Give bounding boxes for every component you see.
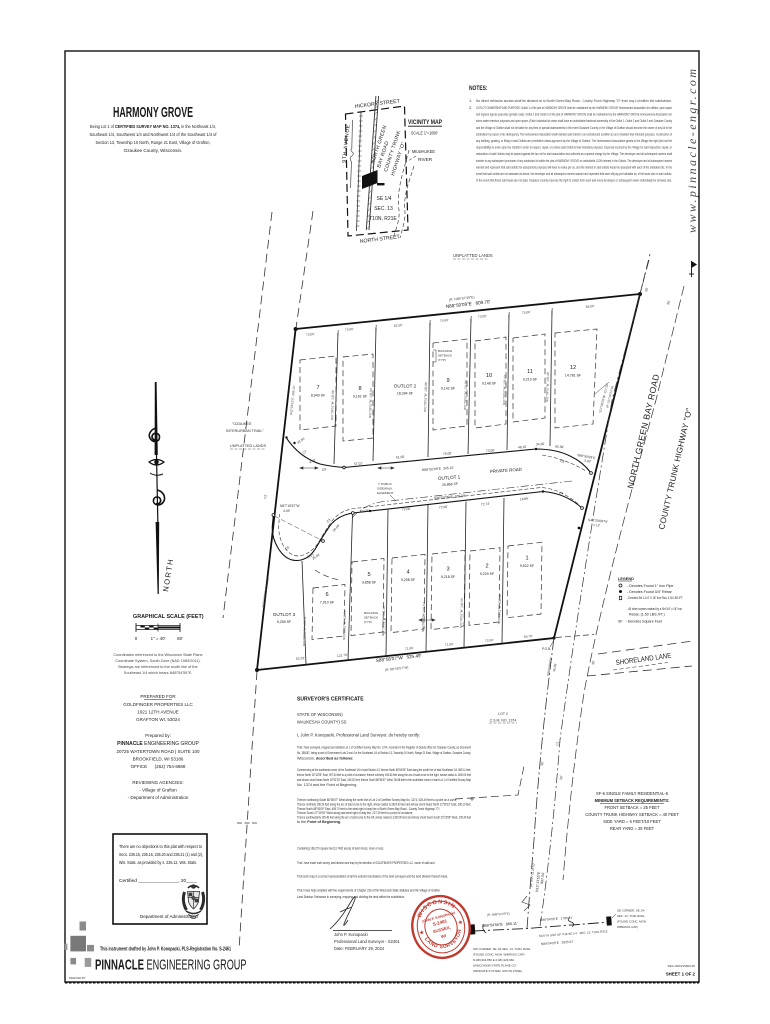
- svg-text:30': 30': [559, 775, 564, 780]
- svg-text:- Village of Grafton: - Village of Grafton: [139, 788, 177, 793]
- svg-text:MINIMUM SETBACK REQUIREMENTS:: MINIMUM SETBACK REQUIREMENTS:: [595, 798, 670, 803]
- svg-text:EASEMENT: EASEMENT: [377, 491, 394, 495]
- svg-text:85.39': 85.39': [555, 445, 565, 450]
- svg-text:9: 9: [446, 378, 449, 384]
- svg-text:STATE OF WISCONSIN): STATE OF WISCONSIN): [297, 712, 343, 717]
- svg-text:and whose chord bears North 19: and whose chord bears North 19°52'25" Ea…: [297, 778, 471, 782]
- svg-text:"OZAUKEE: "OZAUKEE: [232, 422, 252, 426]
- svg-text:C2: C2: [263, 494, 268, 499]
- svg-text:PREPARED FOR: PREPARED FOR: [140, 694, 176, 699]
- svg-text:RIVER: RIVER: [418, 157, 433, 162]
- svg-text:Wis. Stats. as provided by s.: Wis. Stats. as provided by s. 236.12, Wi…: [119, 860, 197, 866]
- svg-text:UNPLATTED LANDS: UNPLATTED LANDS: [230, 444, 266, 448]
- svg-text:warrant and represent that sai: warrant and represent that said outlots …: [476, 164, 672, 169]
- svg-text:OUTLOT OWNERSHIP AND PURPOSE:: OUTLOT OWNERSHIP AND PURPOSE: Outlot 1 o…: [476, 105, 672, 110]
- svg-text:ENGINEERING GROUP: ENGINEERING GROUP: [147, 958, 247, 974]
- svg-text:7,910 SF: 7,910 SF: [320, 601, 334, 605]
- svg-text:72.00': 72.00': [402, 507, 412, 512]
- svg-text:SHEET 1 OF 2: SHEET 1 OF 2: [666, 972, 696, 977]
- svg-text:(WISCONSIN STATE PLANE CO-: (WISCONSIN STATE PLANE CO-: [473, 964, 517, 968]
- svg-text:- Denotes Set 1-1/4" X 18" Ir: - Denotes Set 1-1/4" X 18" Iron Rod, 4.3…: [627, 596, 683, 600]
- svg-text:This instrument drafted by Joh: This instrument drafted by John P. Konop…: [100, 947, 231, 953]
- svg-text:PINNACLE: PINNACLE: [95, 958, 144, 974]
- svg-text:- Denotes Found 3/4" Rebar: - Denotes Found 3/4" Rebar: [627, 590, 673, 594]
- svg-text:Commencing at the southwest co: Commencing at the southwest corner of th…: [297, 768, 471, 772]
- svg-text:12: 12: [570, 365, 576, 371]
- svg-text:80': 80': [177, 636, 183, 641]
- svg-text:9,218 SF: 9,218 SF: [441, 575, 455, 579]
- svg-text:subdivision by reason of tax d: subdivision by reason of tax delinquency…: [476, 131, 673, 136]
- svg-text:1" = 40': 1" = 40': [151, 636, 166, 641]
- svg-text:2: 2: [485, 564, 488, 570]
- svg-text:72.73': 72.73': [481, 502, 491, 507]
- svg-text:That I have surveyed, mapped a: That I have surveyed, mapped and divided…: [297, 746, 471, 750]
- svg-text:4.49': 4.49': [283, 509, 290, 513]
- svg-text:BROOKFIELD, WI 53186: BROOKFIELD, WI 53186: [133, 757, 184, 762]
- svg-text:Professional Land Surveyor - S: Professional Land Surveyor - S2461: [334, 939, 400, 944]
- svg-text:2.: 2.: [469, 105, 472, 110]
- svg-text:9,161 SF: 9,161 SF: [353, 395, 367, 399]
- svg-text:(TYP): (TYP): [364, 620, 372, 624]
- svg-text:Ozaukee County, Wisconsin.: Ozaukee County, Wisconsin.: [124, 148, 183, 153]
- svg-text:8,940 SF: 8,940 SF: [311, 394, 325, 398]
- svg-text:75.00': 75.00': [443, 451, 453, 456]
- svg-text:SEC. 13: SEC. 13: [374, 206, 393, 212]
- svg-text:30': 30': [540, 761, 545, 766]
- svg-text:GRAPHICAL SCALE (FEET): GRAPHICAL SCALE (FEET): [133, 614, 204, 620]
- svg-text:SIDE YARD = 6 FEET/10 FEET: SIDE YARD = 6 FEET/10 FEET: [603, 819, 661, 824]
- svg-text:NOTES:: NOTES:: [469, 85, 488, 92]
- svg-text:Thence South 27°39'03" West al: Thence South 27°39'03" West along said w…: [297, 811, 413, 815]
- svg-text:10: 10: [486, 373, 492, 379]
- svg-text:No direct vehicular access sha: No direct vehicular access shall be allo…: [476, 98, 672, 103]
- svg-text:OUTLOT 3: OUTLOT 3: [273, 612, 296, 617]
- svg-text:P.O.B.: P.O.B.: [542, 647, 551, 651]
- svg-text:5: 5: [367, 572, 370, 578]
- svg-text:REAR YARD = 25 FEET: REAR YARD = 25 FEET: [610, 826, 655, 831]
- svg-text:No. 356267, being a part of Go: No. 356267, being a part of Government L…: [297, 751, 471, 755]
- svg-text:- Department of Administration: - Department of Administration: [128, 795, 189, 800]
- svg-text:SW CORNER, SE 1/4 SEC. 13, T10: SW CORNER, SE 1/4 SEC. 13, T10N, R21E: [473, 947, 530, 951]
- svg-text:Wisconsin, described as follow: Wisconsin, described as follows:: [297, 757, 353, 761]
- svg-text:Southeast 1/4 which bears N88°: Southeast 1/4 which bears N88°54'55"E.: [124, 671, 192, 675]
- svg-text:any building, grading, or fill: any building, grading, or filling in sai…: [476, 138, 672, 143]
- svg-text:C8: C8: [560, 459, 565, 464]
- svg-text:14,781 SF: 14,781 SF: [565, 374, 581, 378]
- svg-text:Coordinates referenced to the: Coordinates referenced to the Wisconsin …: [113, 653, 202, 657]
- svg-text:Land Division Ordinance in su: Land Division Ordinance in surveying, ma…: [297, 895, 405, 899]
- svg-text:PEG-0064/15003.00: PEG-0064/15003.00: [668, 964, 696, 968]
- svg-text:N87°18'57"W: N87°18'57"W: [280, 504, 301, 508]
- svg-text:Containing 168,270 square feet: Containing 168,270 square feet (3.7482 a…: [297, 847, 384, 851]
- svg-text:73.00': 73.00': [486, 448, 496, 453]
- svg-text:SE 1/4: SE 1/4: [376, 196, 391, 202]
- svg-text:(FOUND CONC. MON. W/BRASS CAP): (FOUND CONC. MON. W/BRASS CAP): [473, 953, 525, 957]
- svg-text:WAUKESHA COUNTY) SS: WAUKESHA COUNTY) SS: [297, 720, 347, 725]
- svg-text:storm water retention purposes: storm water retention purposes and open …: [476, 118, 672, 123]
- svg-text:5,259 SF: 5,259 SF: [277, 620, 291, 624]
- svg-text:Coordinate System, South Zone: Coordinate System, South Zone (NAD 1983/…: [115, 659, 200, 663]
- svg-text:SETBACK: SETBACK: [438, 354, 452, 358]
- svg-text:Rebar, (1.50 LBS./FT.): Rebar, (1.50 LBS./FT.): [629, 613, 665, 617]
- svg-text:C4: C4: [559, 491, 564, 496]
- svg-text:SF-6 SINGLE FAMILY RESIDENTIAL: SF-6 SINGLE FAMILY RESIDENTIAL-6: [596, 791, 669, 796]
- svg-text:6: 6: [325, 592, 328, 598]
- svg-text:SEC. 13, T10N R21E: SEC. 13, T10N R21E: [617, 914, 644, 918]
- svg-text:1.12': 1.12': [593, 523, 601, 528]
- svg-text:PINNACLE ENGINEERING GROUP: PINNACLE ENGINEERING GROUP: [117, 741, 199, 747]
- svg-text:SCALE 1"=1000': SCALE 1"=1000': [411, 131, 438, 136]
- svg-text:HARMONY GROVE: HARMONY GROVE: [113, 104, 193, 121]
- svg-text:and ingress-egress purposes (p: and ingress-egress purposes (private roa…: [476, 112, 672, 117]
- svg-text:OFFICE (262) 754-8888: OFFICE (262) 754-8888: [131, 764, 186, 769]
- svg-text:Being Lot 1 of CERTIFIED SURVE: Being Lot 1 of CERTIFIED SURVEY MAP NO. …: [90, 124, 216, 129]
- svg-text:Prepared by:: Prepared by:: [145, 733, 171, 738]
- svg-text:Secs. 236.15, 236.16, 236.20 a: Secs. 236.15, 236.16, 236.20 and 236.21 …: [119, 852, 203, 858]
- svg-text:N:480,964.850 E:2,481,926.960: N:480,964.850 E:2,481,926.960: [473, 958, 514, 962]
- svg-text:DRAFTED BY: DRAFTED BY: [69, 976, 86, 980]
- svg-text:I, John P. Konopacki, Professi: I, John P. Konopacki, Professional Land …: [297, 733, 420, 738]
- svg-text:Bearings are referenced to the: Bearings are referenced to the south lin…: [118, 665, 197, 669]
- svg-text:Thence southwesterly 105.48 fe: Thence southwesterly 105.48 feet along t…: [297, 816, 471, 820]
- svg-text:That I have fully complied wit: That I have fully complied with the requ…: [297, 889, 440, 893]
- svg-text:Section 13, Township 10 North,: Section 13, Township 10 North, Range 21 …: [96, 140, 211, 145]
- svg-text:That I have made such survey,: That I have made such survey, land divis…: [297, 861, 435, 865]
- svg-text:9,220 SF: 9,220 SF: [480, 572, 494, 576]
- svg-text:SF - Denotes Square Feet: SF - Denotes Square Feet: [618, 620, 662, 624]
- svg-text:72.00': 72.00': [439, 505, 449, 510]
- svg-text:BUILDING: BUILDING: [438, 349, 453, 353]
- svg-text:3: 3: [446, 567, 449, 573]
- svg-text:GRAFTON WI, 53024: GRAFTON WI, 53024: [136, 717, 180, 722]
- svg-text:REVIEWING AGENCIES:: REVIEWING AGENCIES:: [132, 780, 183, 785]
- svg-text:(TYP): (TYP): [438, 358, 446, 362]
- svg-text:MILWAUKEE: MILWAUKEE: [412, 149, 435, 154]
- svg-text:W/BRASS CAP): W/BRASS CAP): [617, 925, 638, 929]
- svg-text:Thence continuing South 88°58': Thence continuing South 88°58'07" West a…: [297, 798, 457, 802]
- svg-text:Certified _______________, 20_: Certified _______________, 20____: [119, 878, 197, 884]
- svg-text:T10N, R21E: T10N, R21E: [369, 216, 397, 222]
- svg-text:1: 1: [525, 556, 528, 562]
- svg-text:No. 1374 and the Point of Begi: No. 1374 and the Point of Beginning.: [297, 783, 357, 787]
- svg-text:John P. Konopacki: John P. Konopacki: [334, 932, 368, 937]
- svg-text:Date: FEBRUARY 29, 2024: Date: FEBRUARY 29, 2024: [334, 946, 385, 951]
- svg-text:LEGEND: LEGEND: [618, 577, 634, 581]
- svg-text:That such map is a correct rep: That such map is a correct representatio…: [297, 875, 448, 879]
- svg-text:GOLDFINGER PROPERTIES LLC: GOLDFINGER PROPERTIES LLC: [123, 702, 193, 707]
- svg-text:INTERURBAN TRAIL": INTERURBAN TRAIL": [226, 429, 264, 433]
- svg-text:Southeast 1/4, Southwest 1/4 a: Southeast 1/4, Southwest 1/4 and Northwe…: [90, 132, 218, 137]
- svg-text:LOT 2: LOT 2: [498, 712, 508, 716]
- svg-text:event that said outlots are no: event that said outlots are not assessed…: [476, 171, 672, 176]
- svg-text:VICINITY MAP: VICINITY MAP: [408, 120, 442, 126]
- svg-text:Thence North 88°50'09" East, 6: Thence North 88°50'09" East, 609.70 feet…: [297, 807, 440, 811]
- svg-text:Thence northerly 296.24 feet a: Thence northerly 296.24 feet along the a…: [297, 802, 471, 806]
- svg-text:20725 WATERTOWN ROAD | SUITE: 20725 WATERTOWN ROAD | SUITE 100: [116, 749, 200, 754]
- svg-text:60.08': 60.08': [360, 509, 370, 514]
- svg-text:9,522 SF: 9,522 SF: [520, 564, 534, 568]
- svg-text:responsibility) to enter upon: responsibility) to enter upon the Outlot…: [476, 145, 672, 150]
- svg-text:- Denotes Found 1" Iron Pipe: - Denotes Found 1" Iron Pipe: [627, 584, 673, 588]
- svg-text:9,148 SF: 9,148 SF: [482, 382, 496, 386]
- svg-text:48.15': 48.15': [518, 445, 528, 450]
- svg-text:In the event that these said t: In the event that these said taxes are n…: [476, 178, 672, 183]
- svg-text:8: 8: [358, 386, 361, 392]
- svg-text:1.: 1.: [469, 98, 472, 103]
- svg-text:11: 11: [527, 369, 533, 375]
- svg-text:SETBACK: SETBACK: [364, 616, 378, 620]
- svg-text:4: 4: [406, 570, 409, 576]
- svg-text:FRONT SETBACK = 25 FEET: FRONT SETBACK = 25 FEET: [604, 805, 660, 810]
- svg-text:SURVEYOR'S CERTIFICATE: SURVEYOR'S CERTIFICATE: [297, 697, 364, 703]
- svg-text:9,208 SF: 9,208 SF: [401, 578, 415, 582]
- svg-text:There are no objections to thi: There are no objections to this plat wit…: [119, 844, 202, 850]
- svg-text:C9: C9: [322, 467, 327, 472]
- svg-text:C.S.M. NO. 1374: C.S.M. NO. 1374: [490, 719, 517, 723]
- svg-text:- All other corners marked by: - All other corners marked by a Set 3/4"…: [627, 607, 682, 611]
- svg-text:7: 7: [316, 385, 319, 391]
- svg-text:18,394 SF: 18,394 SF: [397, 392, 413, 396]
- svg-text:C1: C1: [555, 741, 560, 746]
- svg-text:COUNTY TRUNK HIGHWAY SETBACK =: COUNTY TRUNK HIGHWAY SETBACK = 40 FEET: [585, 812, 679, 817]
- svg-text:1021 12TH AVENUE: 1021 12TH AVENUE: [137, 710, 178, 715]
- svg-text:61.05': 61.05': [396, 455, 406, 460]
- svg-text:9,213 SF: 9,213 SF: [523, 378, 537, 382]
- svg-text:9,142 SF: 9,142 SF: [441, 387, 455, 391]
- svg-text:7' PUBLIC: 7' PUBLIC: [378, 482, 393, 486]
- svg-text:and the Village of Grafton sha: and the Village of Grafton shall not be …: [476, 125, 672, 130]
- svg-text:UNPLATTED LANDS: UNPLATTED LANDS: [453, 253, 493, 258]
- svg-text:57.01': 57.01': [354, 461, 364, 466]
- svg-text:ORDINATE SYSTEM, SOUTH ZONE): ORDINATE SYSTEM, SOUTH ZONE): [473, 969, 522, 973]
- svg-text:34.30': 34.30': [536, 442, 546, 447]
- svg-text:9,858 SF: 9,858 SF: [362, 581, 376, 585]
- svg-text:BUILDING: BUILDING: [364, 611, 379, 615]
- svg-text:restoration of said Outlots ma: restoration of said Outlots may be place…: [476, 151, 672, 156]
- svg-text:SE CORNER, SE 1/4: SE CORNER, SE 1/4: [617, 909, 645, 913]
- svg-text:to the Point of Beginning.: to the Point of Beginning.: [297, 820, 341, 824]
- svg-text:SIDEWALK: SIDEWALK: [377, 487, 392, 491]
- svg-text:OUTLOT 2: OUTLOT 2: [394, 384, 417, 389]
- svg-text:transfer to any subsequent pur: transfer to any subsequent purchaser of …: [476, 158, 672, 163]
- svg-text:(FOUND CONC. MON.: (FOUND CONC. MON.: [617, 920, 647, 924]
- svg-text:thence North 15°13'55" East, 9: thence North 15°13'55" East, 907.54 feet…: [297, 773, 471, 777]
